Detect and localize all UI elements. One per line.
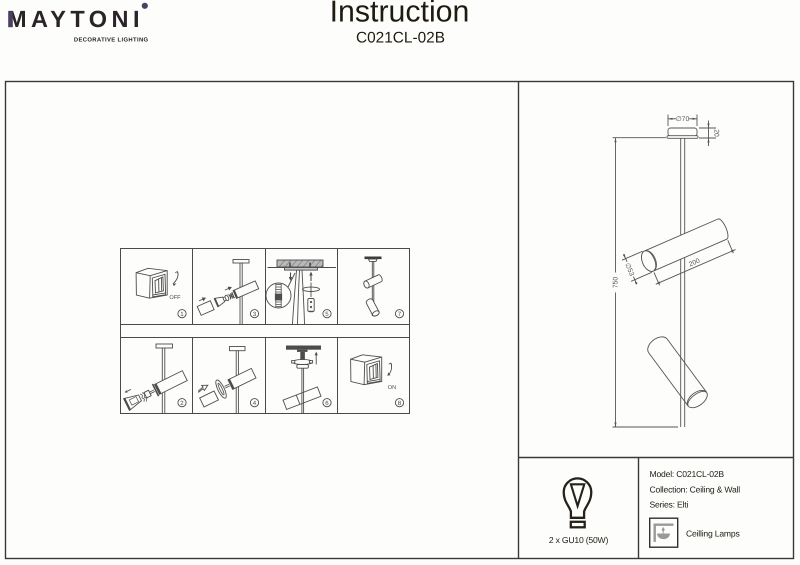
svg-text:2 x GU10 (50W): 2 x GU10 (50W) xyxy=(549,535,609,545)
svg-text:2: 2 xyxy=(180,400,184,407)
svg-text:1: 1 xyxy=(180,311,184,318)
svg-text:∅70: ∅70 xyxy=(676,116,690,123)
svg-text:4: 4 xyxy=(253,400,257,407)
svg-text:20: 20 xyxy=(713,129,720,137)
svg-text:Series: Elti: Series: Elti xyxy=(650,500,689,510)
svg-text:DECORATIVE LIGHTING: DECORATIVE LIGHTING xyxy=(74,37,149,44)
svg-text:ON: ON xyxy=(388,385,396,391)
svg-text:MAYTONI: MAYTONI xyxy=(7,6,144,32)
svg-text:200: 200 xyxy=(688,257,701,268)
svg-text:5: 5 xyxy=(325,311,329,318)
svg-text:Model: C021CL-02B: Model: C021CL-02B xyxy=(650,469,725,479)
svg-text:3: 3 xyxy=(253,311,257,318)
svg-text:6: 6 xyxy=(325,400,329,407)
svg-text:8: 8 xyxy=(398,400,402,407)
svg-text:C021CL-02B: C021CL-02B xyxy=(356,30,445,47)
svg-text:Collection: Ceiling & Wall: Collection: Ceiling & Wall xyxy=(650,484,741,494)
svg-text:Instruction: Instruction xyxy=(330,0,470,29)
svg-text:7: 7 xyxy=(398,311,402,318)
svg-text:OFF: OFF xyxy=(169,295,181,301)
svg-text:Ceilling Lamps: Ceilling Lamps xyxy=(686,529,740,539)
svg-text:750: 750 xyxy=(612,277,619,289)
svg-text:∅53: ∅53 xyxy=(623,262,635,277)
